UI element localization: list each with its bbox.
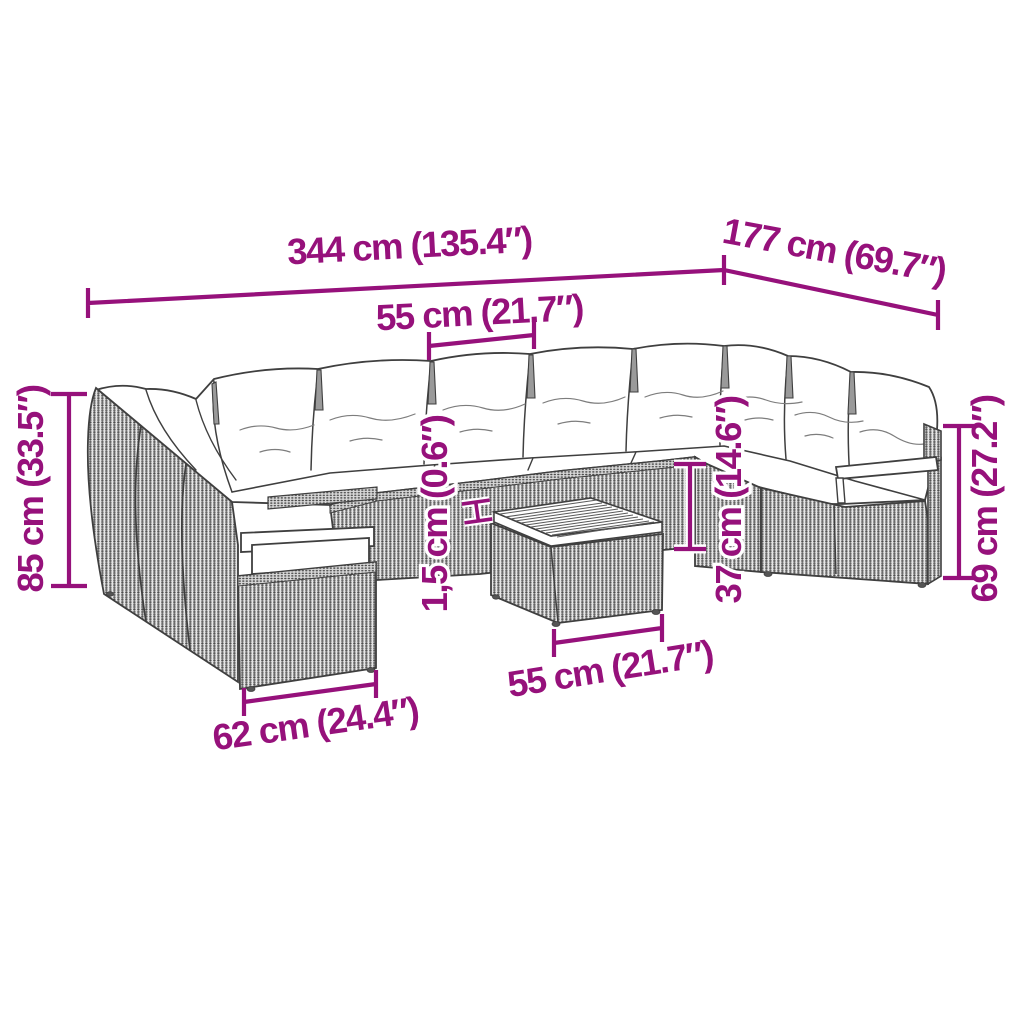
svg-text:69 cm (27.2″): 69 cm (27.2″) [964, 395, 1005, 602]
svg-text:1,5 cm (0.6″): 1,5 cm (0.6″) [414, 415, 455, 612]
svg-text:37 cm (14.6″): 37 cm (14.6″) [708, 396, 749, 603]
svg-text:85 cm (33.5″): 85 cm (33.5″) [10, 385, 51, 592]
